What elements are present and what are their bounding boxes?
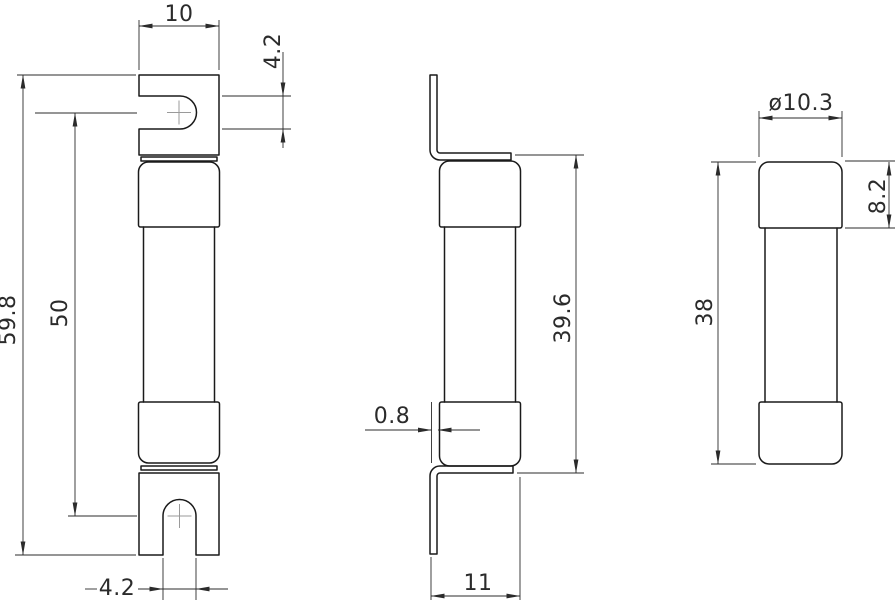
side-top-blade bbox=[430, 75, 511, 160]
dim-cap-to-cap-height: 39.6 bbox=[515, 155, 584, 473]
dim-blade-thickness: 0.8 bbox=[365, 402, 480, 463]
front-body bbox=[144, 227, 215, 402]
top-slot-center-mark bbox=[167, 101, 191, 125]
front-bottom-cap bbox=[139, 402, 220, 463]
dim-cap-height: 8.2 bbox=[845, 161, 895, 228]
dim-label-overall-depth: 11 bbox=[464, 571, 493, 596]
side-bottom-cap bbox=[440, 402, 521, 466]
cartridge-view: ø10.3 8.2 38 bbox=[693, 91, 895, 464]
dim-cartridge-length: 38 bbox=[693, 162, 756, 464]
dim-slot-center-distance: 50 bbox=[35, 113, 137, 516]
front-view: 10 4.2 59.8 50 bbox=[0, 2, 291, 600]
side-view: 0.8 39.6 11 bbox=[365, 75, 584, 600]
side-body bbox=[445, 227, 516, 402]
dim-label-cap-to-cap-height: 39.6 bbox=[551, 293, 576, 344]
dim-label-cartridge-length: 38 bbox=[693, 298, 718, 327]
dim-blade-width: 10 bbox=[139, 2, 219, 70]
dim-label-cap-height: 8.2 bbox=[866, 178, 891, 215]
dim-slot-width-bottom: 4.2 bbox=[85, 558, 228, 600]
side-bottom-blade bbox=[430, 466, 513, 554]
dim-cap-diameter: ø10.3 bbox=[759, 91, 842, 157]
bottom-slot-center-mark bbox=[168, 504, 192, 528]
dim-label-blade-width: 10 bbox=[165, 2, 194, 27]
dim-label-slot-width-top: 4.2 bbox=[261, 33, 286, 70]
dim-label-blade-thickness: 0.8 bbox=[374, 404, 411, 429]
side-top-cap bbox=[440, 161, 521, 227]
front-top-cap bbox=[139, 162, 220, 227]
dim-label-slot-width-bottom: 4.2 bbox=[99, 576, 136, 600]
dim-overall-depth: 11 bbox=[431, 477, 520, 600]
dim-slot-width-top: 4.2 bbox=[222, 33, 291, 148]
dim-label-slot-center-distance: 50 bbox=[48, 299, 73, 328]
dim-label-cap-diameter: ø10.3 bbox=[769, 91, 834, 116]
front-bottom-washer bbox=[141, 466, 217, 470]
front-top-washer bbox=[141, 157, 217, 161]
cartridge-body bbox=[765, 228, 837, 402]
technical-drawing: 10 4.2 59.8 50 bbox=[0, 0, 895, 600]
cartridge-bottom-cap bbox=[759, 402, 842, 464]
drawing-canvas: 10 4.2 59.8 50 bbox=[0, 0, 895, 600]
dim-label-overall-height: 59.8 bbox=[0, 295, 21, 346]
cartridge-top-cap bbox=[759, 162, 842, 228]
